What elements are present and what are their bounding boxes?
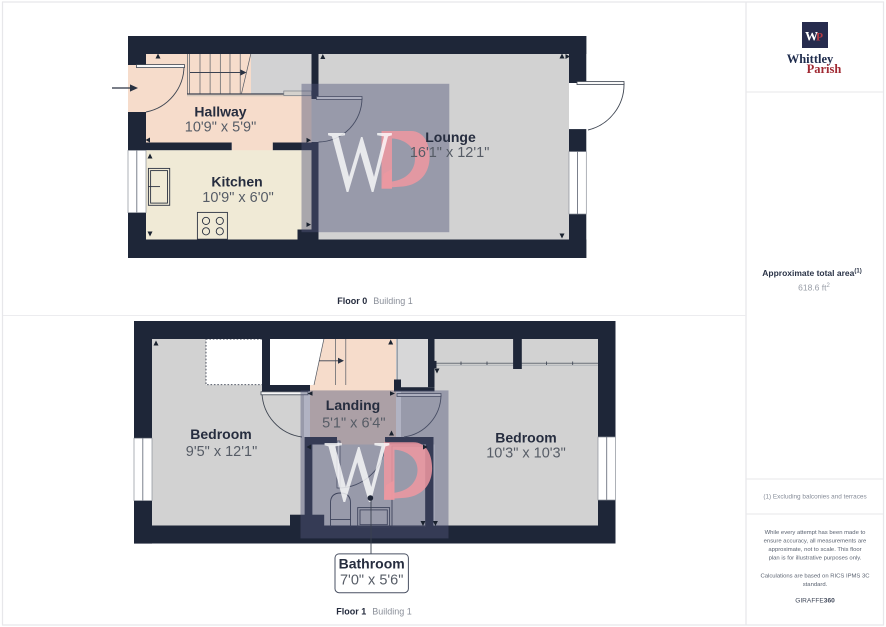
svg-text:10'3" x 10'3": 10'3" x 10'3" (486, 446, 566, 462)
svg-text:Floor 0Building 1: Floor 0Building 1 (337, 296, 413, 306)
svg-text:ensure accuracy, all measureme: ensure accuracy, all measurements are (764, 539, 867, 545)
svg-text:Calculations are based on RICS: Calculations are based on RICS IPMS 3C (760, 574, 870, 580)
svg-text:10'9" x 5'9": 10'9" x 5'9" (185, 120, 256, 136)
svg-text:W: W (328, 114, 392, 211)
svg-text:While every attempt has been m: While every attempt has been made to (765, 530, 867, 536)
svg-text:Hallway: Hallway (194, 104, 246, 120)
svg-text:10'9" x 6'0": 10'9" x 6'0" (202, 190, 273, 206)
svg-text:618.6 ft2: 618.6 ft2 (798, 283, 830, 293)
svg-text:Floor 1Building 1: Floor 1Building 1 (336, 607, 412, 617)
svg-text:approximate, not to scale. Thi: approximate, not to scale. This floor (768, 547, 861, 553)
svg-text:standard.: standard. (803, 582, 828, 588)
svg-text:plan is for illustrative purpo: plan is for illustrative purposes only. (769, 556, 862, 562)
svg-text:Kitchen: Kitchen (211, 174, 262, 190)
svg-text:Approximate total area(1): Approximate total area(1) (762, 268, 861, 278)
svg-text:W: W (805, 29, 818, 44)
svg-text:16'1" x 12'1": 16'1" x 12'1" (410, 145, 490, 161)
svg-text:Bathroom: Bathroom (339, 556, 405, 572)
svg-text:Lounge: Lounge (425, 129, 476, 145)
svg-text:W: W (325, 423, 390, 520)
svg-text:Landing: Landing (326, 397, 380, 413)
svg-text:GIRAFFE360: GIRAFFE360 (795, 598, 835, 605)
svg-text:Parish: Parish (807, 62, 842, 76)
svg-text:5'1" x 6'4": 5'1" x 6'4" (322, 416, 385, 432)
svg-text:7'0" x 5'6": 7'0" x 5'6" (340, 573, 403, 589)
svg-text:Bedroom: Bedroom (495, 430, 556, 446)
svg-text:9'5" x 12'1": 9'5" x 12'1" (186, 444, 257, 460)
svg-text:(1) Excluding balconies and te: (1) Excluding balconies and terraces (763, 494, 866, 501)
svg-text:Bedroom: Bedroom (190, 426, 251, 442)
